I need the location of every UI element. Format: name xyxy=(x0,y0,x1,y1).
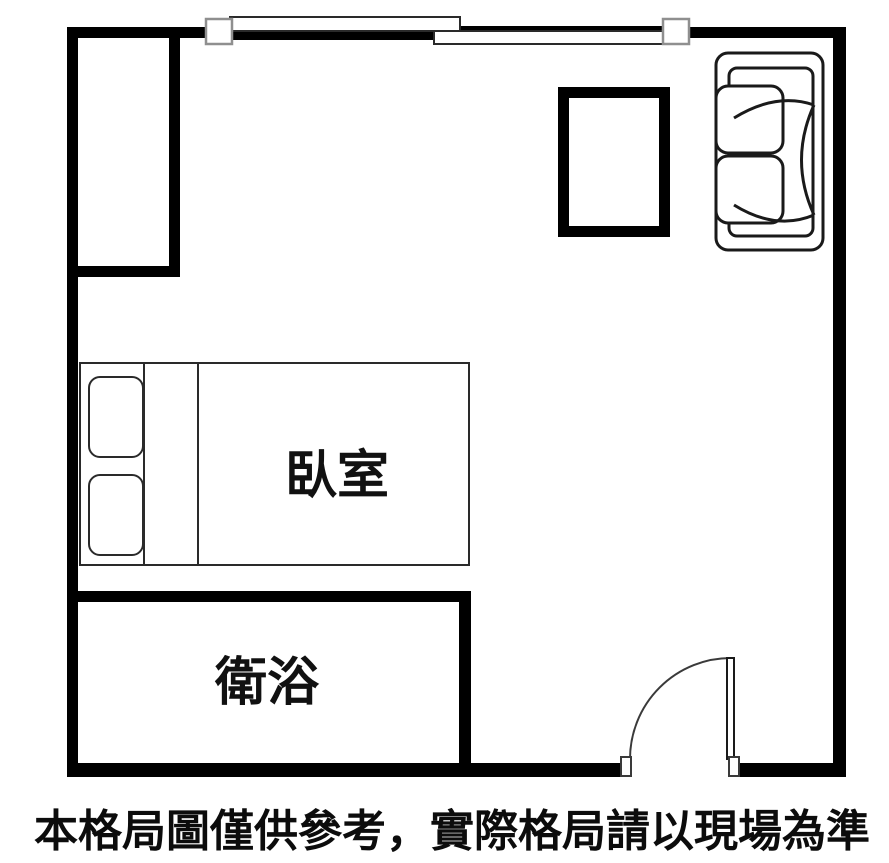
tv-cabinet xyxy=(558,87,670,237)
closet-bottom-wall xyxy=(67,266,180,277)
floor-plan: 臥室 衛浴 本格局圖僅供參考，實際格局請以現場為準 xyxy=(0,0,889,863)
wardrobe-closet xyxy=(67,37,180,277)
window-sash-left xyxy=(206,19,232,44)
caption: 本格局圖僅供參考，實際格局請以現場為準 xyxy=(34,807,870,856)
window-rail-left xyxy=(232,31,462,40)
wall-top-left-segment xyxy=(67,27,207,38)
wall-left xyxy=(67,27,78,777)
door-jamb-left xyxy=(621,757,631,776)
bathroom-label: 衛浴 xyxy=(214,654,320,712)
bed-pillow-bottom xyxy=(89,475,143,555)
bedroom-label: 臥室 xyxy=(285,447,389,505)
wall-bottom-right-segment xyxy=(736,763,846,777)
closet-right-wall xyxy=(169,37,180,277)
wall-bottom-left-segment xyxy=(67,763,625,777)
entry-door xyxy=(621,658,739,776)
bathroom-right-wall xyxy=(459,591,471,765)
bathroom-top-wall xyxy=(67,591,471,602)
floor-plan-svg: 臥室 衛浴 本格局圖僅供參考，實際格局請以現場為準 xyxy=(0,0,889,863)
window-pane-inner xyxy=(434,31,664,44)
wall-top-right-segment xyxy=(688,27,846,38)
tv-cabinet-inner xyxy=(569,98,659,226)
wall-right xyxy=(833,27,846,777)
window-sash-right xyxy=(663,19,689,44)
double-bed xyxy=(80,363,469,565)
sofa-cushion-top xyxy=(716,86,783,153)
door-jamb-right xyxy=(729,757,739,776)
window-pane-outer xyxy=(230,17,460,31)
door-swing-arc xyxy=(630,658,731,759)
sofa xyxy=(716,53,823,250)
bed-pillow-top xyxy=(89,377,143,457)
sliding-window xyxy=(206,17,689,44)
door-panel xyxy=(727,658,734,759)
